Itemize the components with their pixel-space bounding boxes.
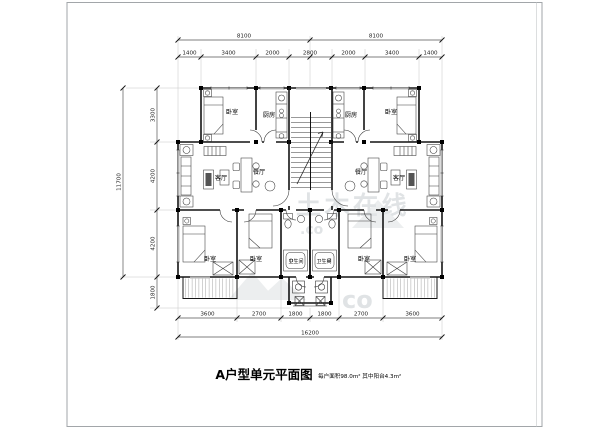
dim-bottom-sub-1: 3600 [200, 312, 215, 318]
dim-left-sub-2: 4200 [151, 168, 157, 183]
room-label-living-right: 客厅 [393, 174, 405, 182]
dim-left-total: 11700 [117, 173, 123, 191]
room-label-dining-right: 餐厅 [355, 168, 367, 176]
dim-top-sub-5: 2000 [341, 51, 356, 57]
room-label-bedroom-lower-left: 卧室 [250, 255, 262, 263]
dim-bottom-sub-4: 1800 [317, 312, 332, 318]
room-label-bathroom-left: 卫生间 [288, 258, 303, 265]
room-label-bedroom-lower-far-right: 卧室 [404, 255, 416, 263]
dim-bottom-sub-6: 3600 [405, 312, 420, 318]
room-label-bedroom-top-right: 卧室 [385, 108, 397, 116]
dim-bottom-sub-5: 2700 [354, 312, 369, 318]
dim-left-sub-4: 1800 [151, 285, 157, 300]
room-label-living-left: 客厅 [215, 174, 227, 182]
dim-top-sub-2: 3400 [221, 51, 236, 57]
watermark-suffix: .co [300, 222, 324, 238]
room-label-bedroom-top-left: 卧室 [226, 108, 238, 116]
dim-left-sub-1: 3300 [151, 107, 157, 122]
dim-top-total-left: 8100 [237, 34, 252, 40]
cad-sheet: co 土木在线 .co [0, 0, 610, 432]
dim-top-total-right: 8100 [369, 34, 384, 40]
drawing-title: A户型单元平面图 [215, 367, 312, 382]
dim-top-sub-6: 3400 [385, 51, 400, 57]
watermark-big: co [342, 286, 373, 314]
title-block: A户型单元平面图 每户面积98.0m² 其中阳台4.3m² [215, 367, 401, 382]
room-label-bathroom-right: 卫生间 [316, 258, 331, 265]
dim-top-sub-1: 1400 [182, 51, 197, 57]
room-label-kitchen-right: 厨房 [345, 111, 357, 119]
room-label-bedroom-lower-right: 卧室 [358, 255, 370, 263]
dim-bottom-sub-3: 1800 [288, 312, 303, 318]
dim-top-sub-4: 2800 [303, 51, 318, 57]
dim-left-sub-3: 4200 [151, 236, 157, 251]
room-label-dining-left: 餐厅 [253, 168, 265, 176]
room-label-kitchen-left: 厨房 [263, 111, 275, 119]
dim-bottom-sub-2: 2700 [252, 312, 267, 318]
dim-bottom-total: 16200 [301, 331, 319, 337]
drawing-subtitle: 每户面积98.0m² 其中阳台4.3m² [318, 372, 401, 380]
floor-plan-drawing: co 土木在线 .co [0, 0, 610, 432]
dim-top-sub-3: 2000 [265, 51, 280, 57]
watermark-text: 土木在线 [296, 191, 410, 220]
room-label-bedroom-lower-far-left: 卧室 [204, 255, 216, 263]
dim-top-sub-7: 1400 [423, 51, 438, 57]
